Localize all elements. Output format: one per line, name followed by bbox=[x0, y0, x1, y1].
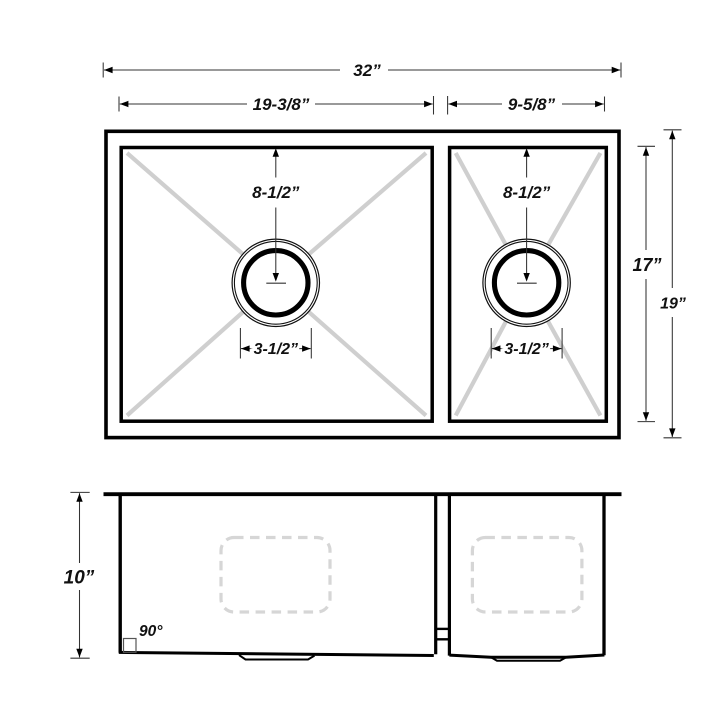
svg-text:3-1/2”: 3-1/2” bbox=[504, 341, 548, 358]
svg-text:19”: 19” bbox=[660, 296, 686, 313]
svg-text:10”: 10” bbox=[64, 568, 95, 589]
svg-text:9-5/8”: 9-5/8” bbox=[508, 95, 556, 114]
svg-text:8-1/2”: 8-1/2” bbox=[252, 183, 300, 202]
svg-text:32”: 32” bbox=[353, 61, 381, 80]
svg-text:90°: 90° bbox=[139, 623, 163, 640]
svg-text:3-1/2”: 3-1/2” bbox=[254, 341, 298, 358]
svg-text:8-1/2”: 8-1/2” bbox=[503, 183, 551, 202]
svg-text:17”: 17” bbox=[632, 255, 661, 275]
svg-text:19-3/8”: 19-3/8” bbox=[253, 95, 310, 114]
